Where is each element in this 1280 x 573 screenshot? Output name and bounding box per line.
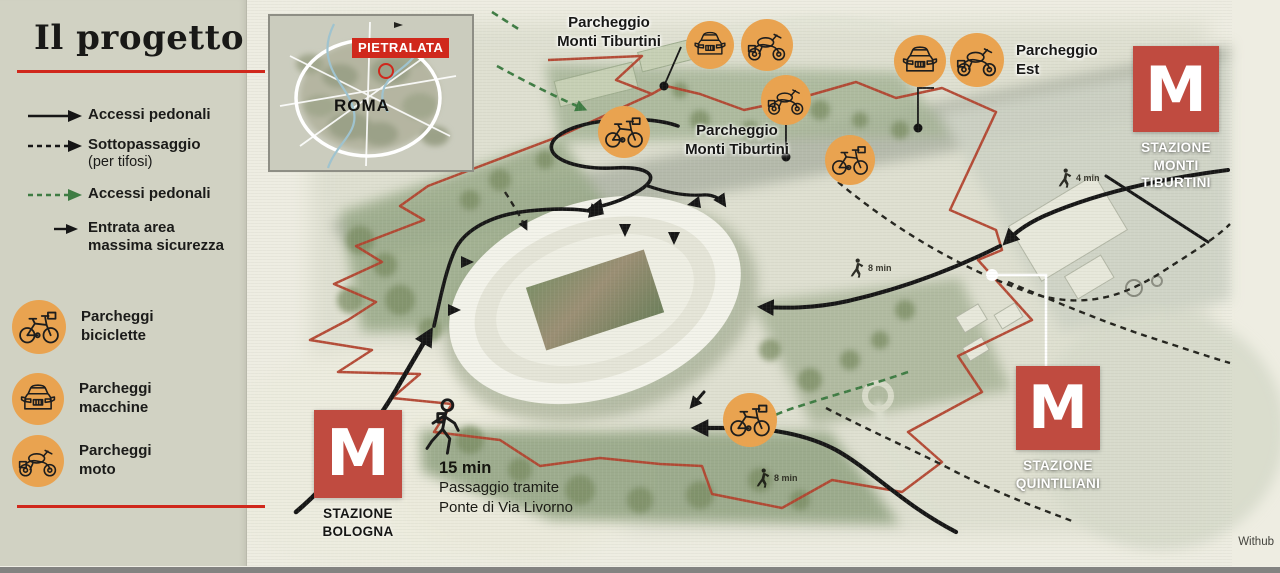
legend-item-entrata-sicurezza: Entrata area massima sicurezza <box>26 219 224 256</box>
credit: Withub <box>1222 536 1274 548</box>
metro-logo: M <box>314 410 402 498</box>
label-line: Est <box>1016 61 1126 80</box>
district-badge: PIETRALATA <box>352 38 449 58</box>
legend-item-parcheggi-macchine: Parcheggi macchine <box>12 373 152 425</box>
motorcycle-icon <box>12 435 64 487</box>
car-parking-icon <box>894 35 946 87</box>
motorcycle-parking-icon <box>950 33 1004 87</box>
title-rule <box>17 70 265 73</box>
legend-label: Accessi pedonali <box>88 106 211 124</box>
station-name: STAZIONE QUINTILIANI <box>1016 457 1100 492</box>
legend-item-parcheggi-moto: Parcheggi moto <box>12 435 152 487</box>
station-bologna: M STAZIONE BOLOGNA <box>312 410 404 540</box>
legend-label: Accessi pedonali <box>88 185 211 203</box>
walker-figure: 8 min <box>850 258 892 278</box>
page-title: Il progetto <box>34 18 244 58</box>
car-icon <box>12 373 64 425</box>
walker-icon <box>424 398 466 463</box>
green-dashed-arrow-icon <box>26 186 84 204</box>
bottom-bar <box>0 567 1280 573</box>
legend-label: Entrata area massima sicurezza <box>88 219 224 256</box>
small-arrow-icon <box>26 220 84 238</box>
motorcycle-parking-icon <box>761 75 811 125</box>
walk-note: 15 min Passaggio tramite Ponte di Via Li… <box>439 459 599 519</box>
station-quintiliani: M STAZIONE QUINTILIANI <box>1008 366 1108 492</box>
motorcycle-parking-icon <box>741 19 793 71</box>
bicycle-parking-icon <box>598 106 650 158</box>
label-line: Parcheggio <box>648 122 826 141</box>
walker-figure: 4 min <box>1058 168 1100 188</box>
walker-figure: 8 min <box>756 468 798 488</box>
legend-sublabel: (per tifosi) <box>88 154 201 170</box>
legend-label: Parcheggi macchine <box>79 380 152 418</box>
metro-logo: M <box>1016 366 1100 450</box>
station-monti-tiburtini: M STAZIONE MONTI TIBURTINI <box>1128 46 1224 192</box>
solid-arrow-icon <box>26 107 84 125</box>
legend-sidebar: Il progetto Accessi pedonali Sottopassag… <box>0 0 247 566</box>
bicycle-parking-icon <box>723 393 777 447</box>
infographic-stage: PIETRALATA ROMA Parcheggio Monti Tiburti… <box>0 0 1280 573</box>
legend-item-sottopassaggio: Sottopassaggio (per tifosi) <box>26 136 201 170</box>
city-label: ROMA <box>334 96 390 116</box>
bicycle-parking-icon <box>825 135 875 185</box>
label-line: Monti Tiburtini <box>520 33 698 52</box>
rome-inset-map: PIETRALATA ROMA <box>268 14 474 172</box>
label-parcheggio-monti-tiburtini-1: Parcheggio Monti Tiburtini <box>520 14 698 52</box>
legend-item-accessi-pedonali: Accessi pedonali <box>26 106 211 125</box>
bicycle-icon <box>12 300 66 354</box>
walk-note-line: Ponte di Via Livorno <box>439 498 599 518</box>
district-marker <box>378 63 394 79</box>
label-parcheggio-monti-tiburtini-2: Parcheggio Monti Tiburtini <box>648 122 826 160</box>
label-line: Parcheggio <box>520 14 698 33</box>
label-parcheggio-est: Parcheggio Est <box>1016 42 1126 80</box>
walk-time: 15 min <box>439 459 599 478</box>
label-line: Parcheggio <box>1016 42 1126 61</box>
legend-item-accessi-pedonali-green: Accessi pedonali <box>26 185 211 204</box>
label-line: Monti Tiburtini <box>648 141 826 160</box>
legend-label: Sottopassaggio <box>88 136 201 154</box>
metro-logo: M <box>1133 46 1219 132</box>
station-name: STAZIONE MONTI TIBURTINI <box>1141 139 1211 192</box>
legend-rule <box>17 505 265 508</box>
legend-label: Parcheggi moto <box>79 442 152 480</box>
legend-label: Parcheggi biciclette <box>81 308 154 346</box>
station-name: STAZIONE BOLOGNA <box>322 505 393 540</box>
dashed-arrow-icon <box>26 137 84 155</box>
walk-note-line: Passaggio tramite <box>439 478 599 498</box>
legend-item-parcheggi-biciclette: Parcheggi biciclette <box>12 300 154 354</box>
